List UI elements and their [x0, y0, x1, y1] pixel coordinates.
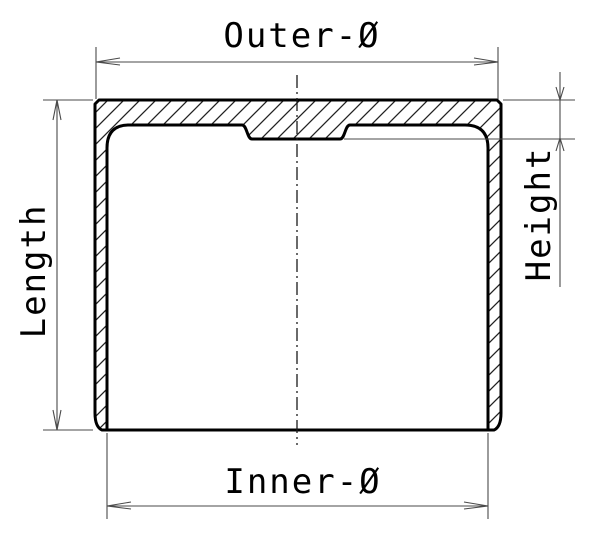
outer-diameter-label: Outer-Ø: [223, 16, 380, 56]
part-section-outline: [95, 100, 501, 430]
technical-drawing-canvas: Outer-Ø Inner-Ø Length Height: [0, 0, 600, 553]
inner-diameter-label: Inner-Ø: [224, 462, 381, 502]
technical-drawing-page: Outer-Ø Inner-Ø Length Height: [0, 0, 600, 553]
part-cross-section: [95, 100, 501, 430]
length-label: Length: [14, 204, 54, 339]
height-label: Height: [519, 147, 559, 282]
